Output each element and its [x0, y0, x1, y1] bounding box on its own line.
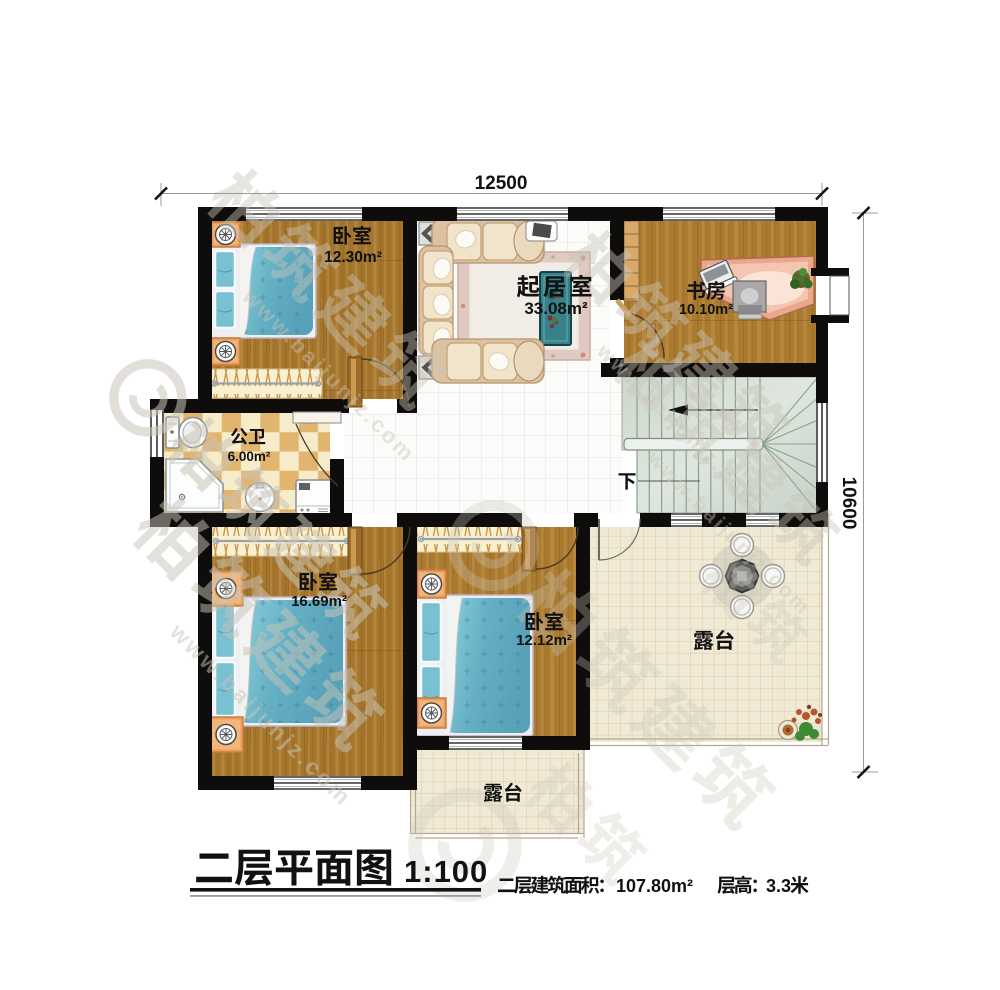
svg-text:10600: 10600: [838, 477, 859, 530]
svg-text:6.00m²: 6.00m²: [228, 449, 271, 464]
svg-text:107.80m²: 107.80m²: [616, 876, 693, 896]
svg-text:33.08m²: 33.08m²: [524, 299, 588, 318]
svg-text:12.30m²: 12.30m²: [324, 249, 382, 266]
svg-text:10.10m²: 10.10m²: [679, 302, 733, 318]
svg-text:12500: 12500: [475, 173, 528, 194]
svg-text:3.3: 3.3: [766, 876, 791, 896]
svg-text:16.69m²: 16.69m²: [291, 593, 347, 610]
svg-text:1:100: 1:100: [404, 854, 488, 889]
svg-text:12.12m²: 12.12m²: [516, 632, 572, 649]
